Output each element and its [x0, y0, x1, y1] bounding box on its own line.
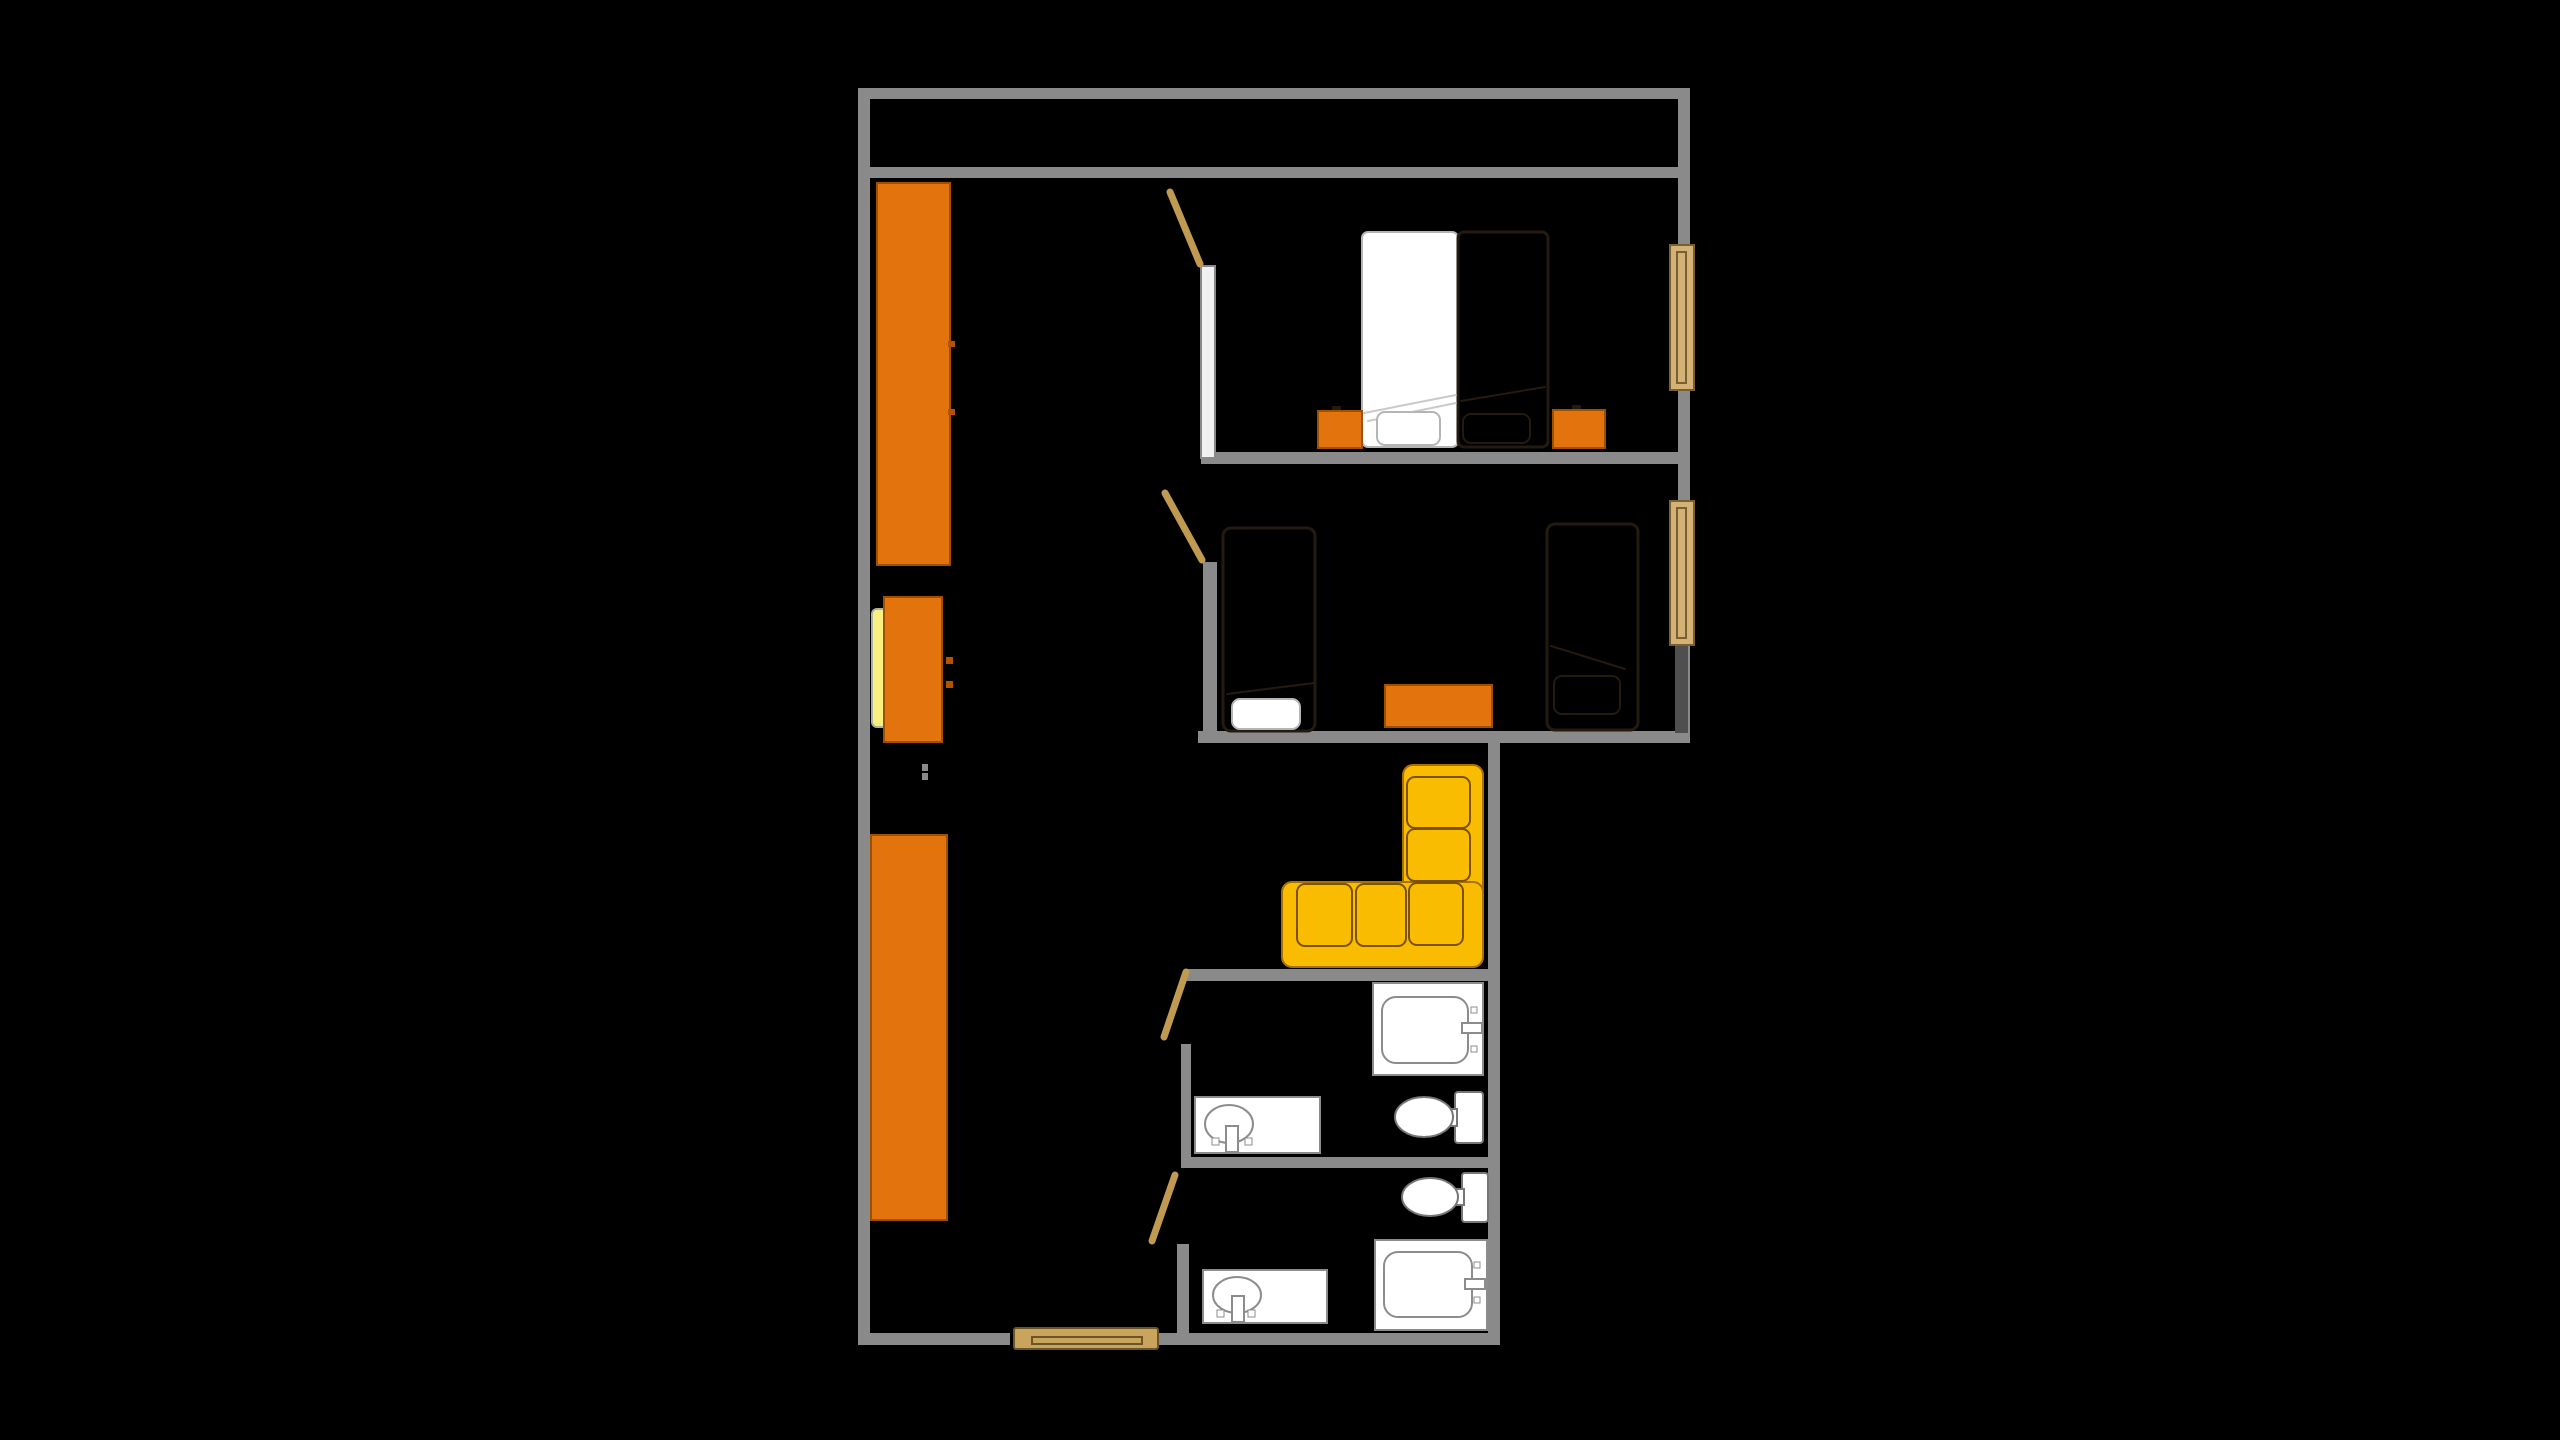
- bedroom1-window: [1670, 245, 1694, 390]
- bath2-toilet-bowl: [1402, 1178, 1458, 1216]
- bath1-sink-handle-2: [1245, 1138, 1252, 1145]
- bedroom2-window-lower-wall: [1675, 643, 1688, 733]
- bath1-toilet-bowl: [1395, 1097, 1453, 1137]
- bedroom1-south-wall: [1201, 452, 1690, 464]
- bath1-bathtub-jet-1: [1471, 1007, 1477, 1013]
- bedroom2-south-wall: [1198, 731, 1690, 743]
- bedroom1-left-wall: [1201, 266, 1215, 458]
- bath1-sink-handle-1: [1212, 1138, 1219, 1145]
- hall-door-stop-1: [922, 764, 928, 771]
- bath2-bathtub-faucet: [1465, 1279, 1485, 1289]
- bedroom1-door: [1170, 192, 1200, 264]
- entry-wall-right: [1157, 1333, 1500, 1345]
- living-south-wall: [1185, 969, 1500, 981]
- floor-plan-canvas: [0, 0, 2560, 1440]
- hall-dresser-handle-2: [946, 681, 953, 688]
- bedroom2-door: [1165, 493, 1202, 560]
- bath2-sink-handle-2: [1248, 1310, 1255, 1317]
- bath2-bathtub-jet-2: [1474, 1297, 1480, 1303]
- bath1-left-wall: [1181, 1044, 1191, 1158]
- balcony-south-wall: [870, 167, 1678, 178]
- bedroom1-pillow-right: [1463, 414, 1530, 443]
- bath1-bathtub-faucet: [1462, 1023, 1482, 1033]
- hall-wardrobe-upper: [877, 183, 950, 565]
- hall-wardrobe-lower: [871, 835, 947, 1220]
- bedroom1-nightstand-left-handle: [1332, 406, 1341, 410]
- bedroom2-bed-left-pillow: [1232, 699, 1300, 729]
- bath1-bathtub-basin: [1382, 997, 1468, 1063]
- bedroom1-nightstand-left: [1318, 411, 1362, 448]
- bedroom2-bed-right: [1547, 524, 1638, 730]
- hall-door-stop-2: [922, 773, 928, 780]
- outer-wall-right-lower: [1488, 743, 1500, 1345]
- bath2-sink-handle-1: [1217, 1310, 1224, 1317]
- sofa-cushion-bottom-2: [1356, 884, 1406, 946]
- bath1-bathtub-jet-2: [1471, 1046, 1477, 1052]
- bedroom1-nightstand-right-handle: [1572, 405, 1581, 409]
- hall-dresser: [884, 597, 942, 742]
- bath1-toilet-tank: [1455, 1092, 1483, 1143]
- sofa-cushion-bottom-1: [1297, 884, 1352, 946]
- bath2-left-wall: [1177, 1244, 1189, 1333]
- outer-wall-top: [858, 88, 1690, 99]
- sofa-cushion-right-1: [1407, 777, 1470, 828]
- entry-wall-left: [858, 1333, 1010, 1345]
- bedroom2-table: [1385, 685, 1492, 727]
- hall-dresser-handle-1: [946, 657, 953, 664]
- floor-plan-svg: [0, 0, 2560, 1440]
- bath2-door: [1152, 1175, 1175, 1241]
- entrance-door: [1014, 1328, 1158, 1349]
- hall-wardrobe-upper-handle-1: [948, 341, 955, 347]
- bedroom2-window: [1670, 501, 1694, 645]
- bedroom1-nightstand-right: [1553, 410, 1605, 448]
- bath1-sink-faucet: [1226, 1126, 1238, 1152]
- sofa-cushion-right-2: [1407, 829, 1470, 881]
- bedroom2-left-wall: [1203, 562, 1217, 732]
- bath1-door: [1164, 972, 1186, 1037]
- bath2-toilet-tank: [1462, 1173, 1488, 1222]
- hall-wardrobe-upper-handle-2: [948, 409, 955, 415]
- bath-divider-wall: [1181, 1157, 1500, 1168]
- bedroom1-pillow-left: [1377, 412, 1440, 445]
- sofa-cushion-bottom-3: [1409, 883, 1463, 945]
- outer-wall-left: [858, 88, 870, 1345]
- bath2-bathtub-basin: [1384, 1252, 1472, 1317]
- bath2-sink-faucet: [1232, 1296, 1244, 1322]
- bath2-bathtub-jet-1: [1474, 1262, 1480, 1268]
